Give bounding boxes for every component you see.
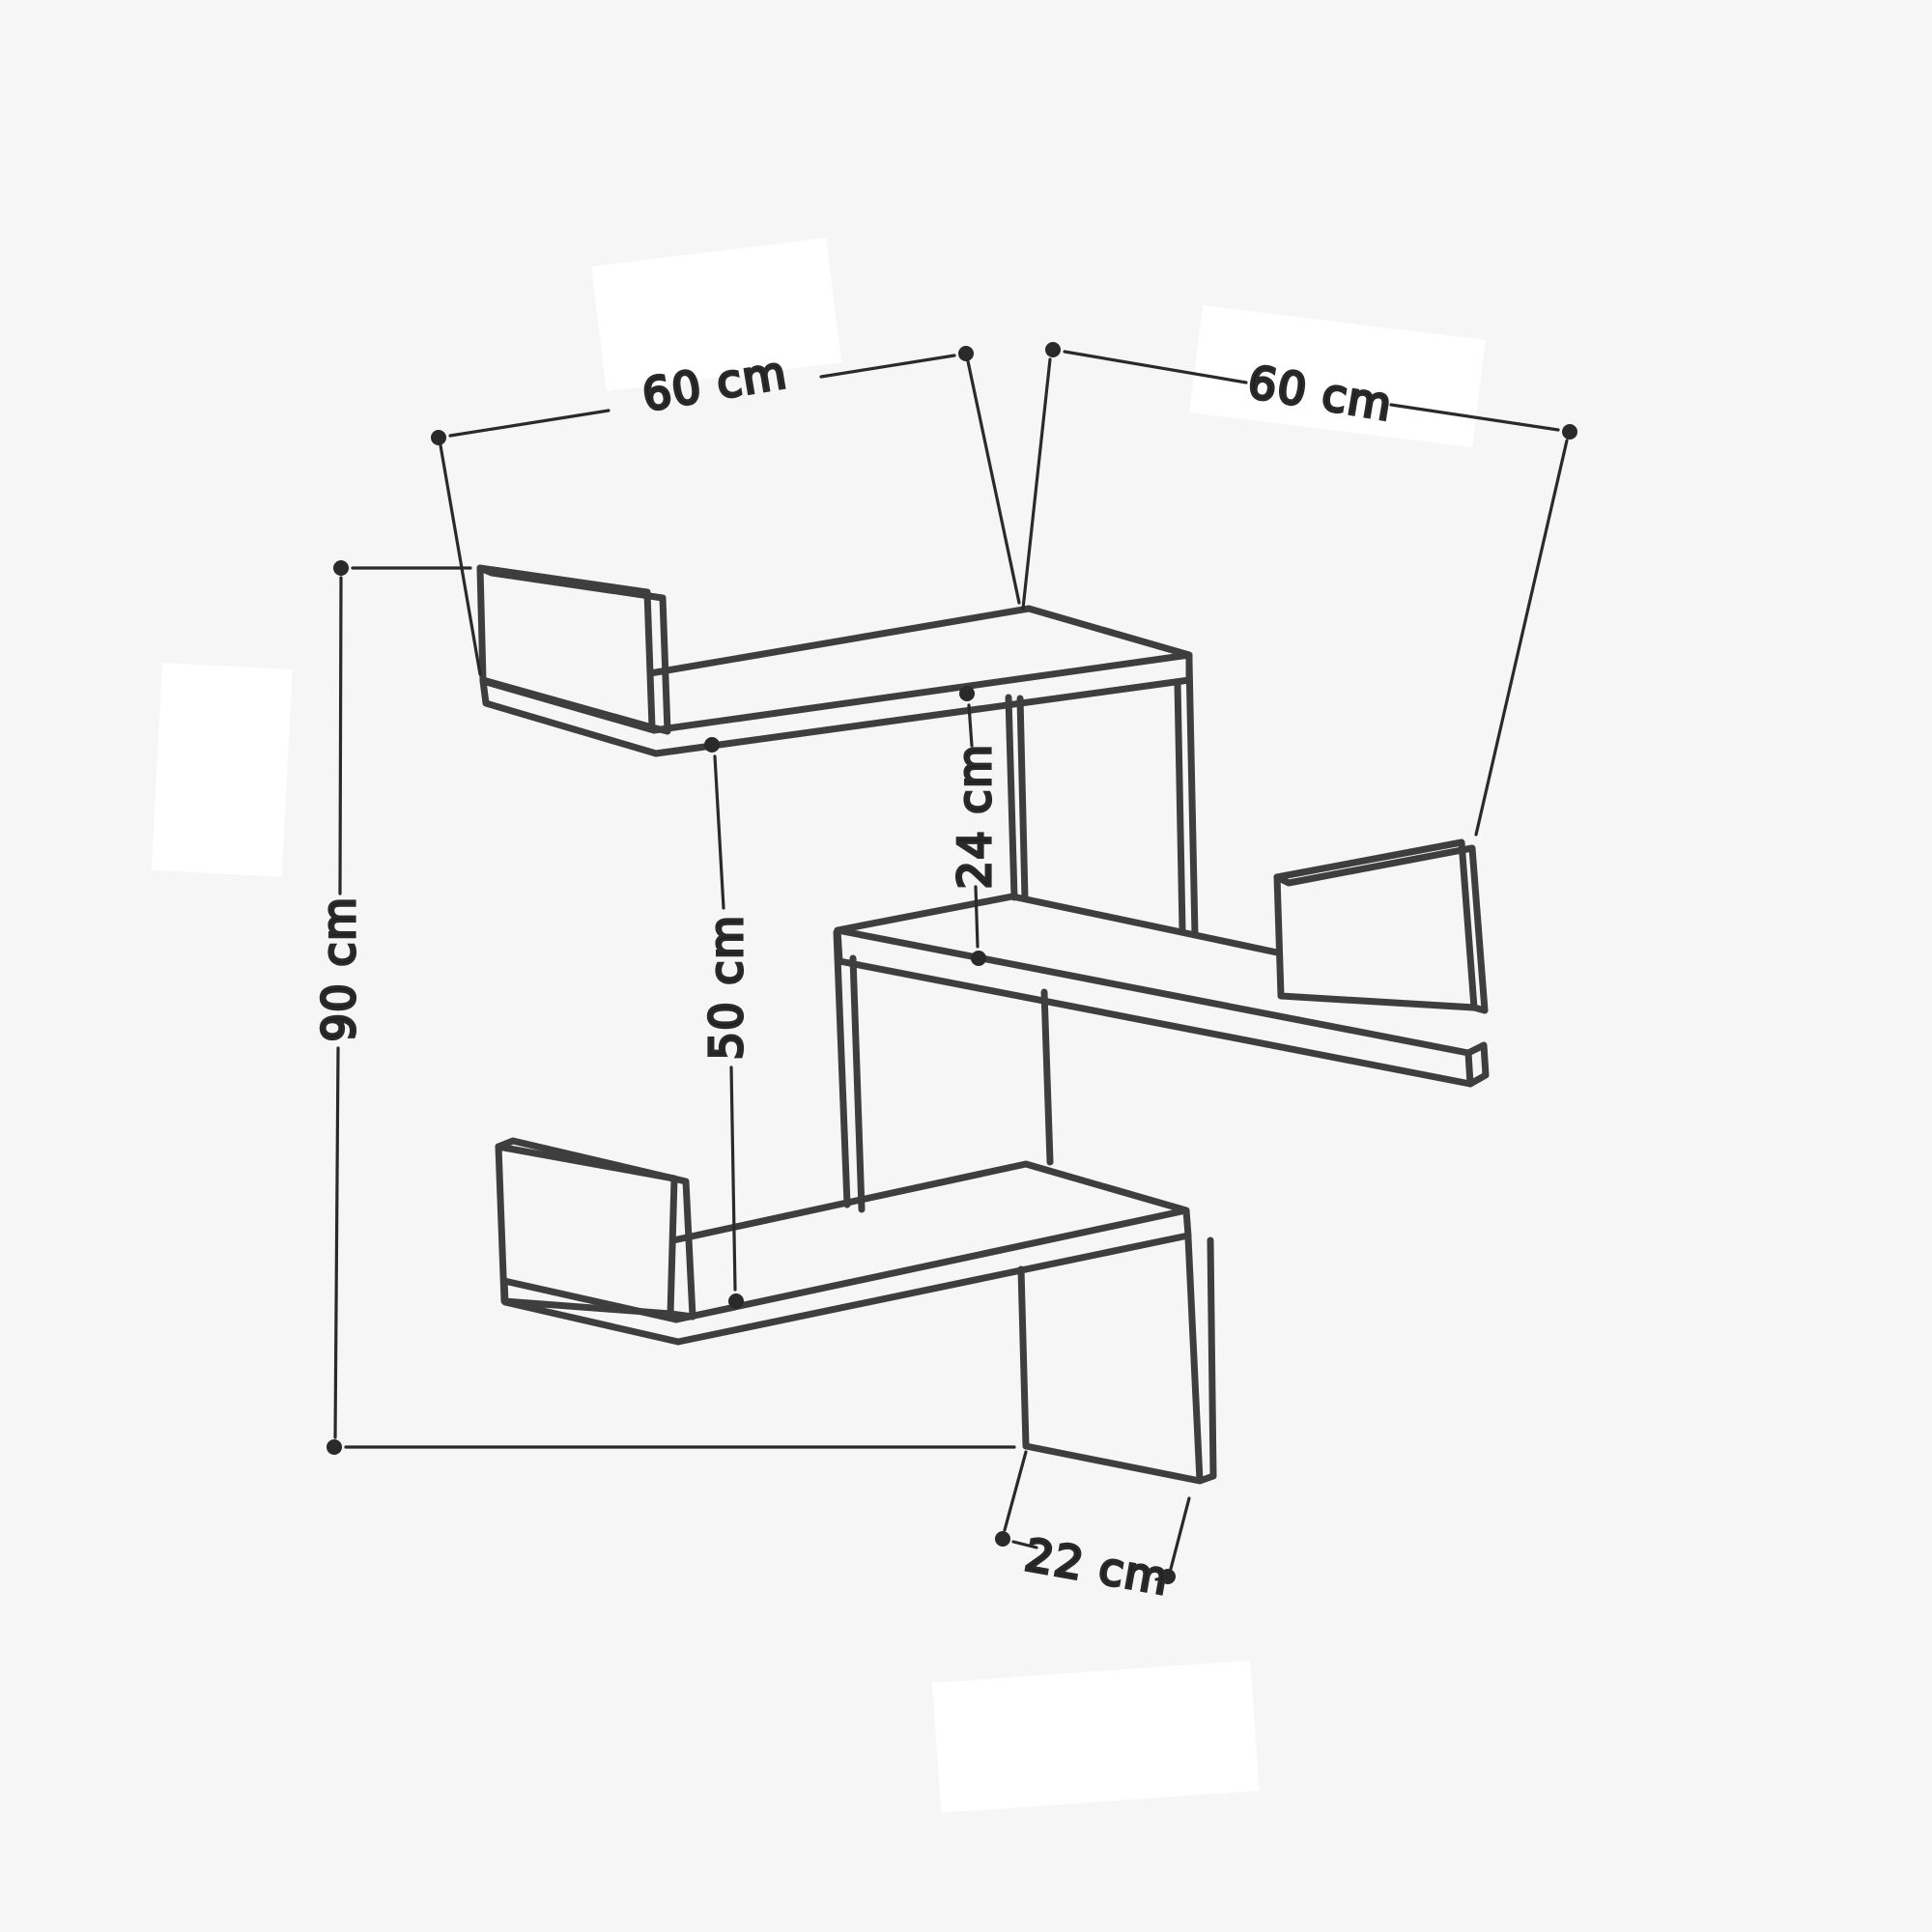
bottom-shelf-board-lip [504, 1281, 678, 1342]
dimension-endpoint-dot [327, 1439, 342, 1455]
dimension-label-small-gap: 24 cm [949, 744, 1001, 890]
background-patch [152, 663, 293, 877]
dimension-label-depth: 22 cm [1021, 1528, 1174, 1605]
top-shelf [480, 568, 1189, 753]
dimension-endpoint-dot [333, 560, 349, 576]
top-shelf-board [650, 609, 1189, 753]
dimension-annotations: 60 cm 60 cm 90 cm [313, 342, 1577, 1605]
bottom-shelf-board [673, 1164, 1188, 1342]
lower-divider-left-edges [837, 932, 862, 1209]
dimension-endpoint-dot [959, 686, 975, 701]
extension-line [1023, 359, 1567, 835]
dimension-endpoint-dot [995, 1531, 1010, 1547]
dimension-endpoint-dot [971, 951, 986, 966]
dimension-endpoint-dot [431, 430, 446, 445]
background-patch [932, 1661, 1260, 1813]
shelf-line-art [480, 568, 1486, 1481]
lower-divider-right-edge [1044, 992, 1050, 1162]
dimension-top-right-width: 60 cm [1023, 342, 1577, 835]
dimension-drawing-canvas: 60 cm 60 cm 90 cm [0, 0, 1932, 1932]
dimension-label-large-gap: 50 cm [700, 915, 753, 1061]
corner-shelf-diagram: 60 cm 60 cm 90 cm [0, 0, 1932, 1932]
upper-divider-right-edges [1178, 661, 1195, 935]
middle-shelf [838, 842, 1486, 1084]
dimension-endpoint-dot [728, 1293, 744, 1309]
dimension-label-total-height: 90 cm [313, 896, 365, 1042]
upper-divider-left-edges [1009, 697, 1025, 898]
dimension-endpoint-dot [1562, 424, 1577, 440]
top-shelf-board-lip [483, 681, 656, 753]
bottom-support-edges [1021, 1237, 1213, 1481]
middle-shelf-board [838, 896, 1470, 1084]
dimension-endpoint-dot [1045, 342, 1061, 357]
dimension-endpoint-dot [704, 737, 720, 753]
bottom-support-panel [1021, 1237, 1213, 1481]
dimension-endpoint-dot [958, 346, 974, 361]
dimension-small-gap: 24 cm [949, 686, 1001, 966]
